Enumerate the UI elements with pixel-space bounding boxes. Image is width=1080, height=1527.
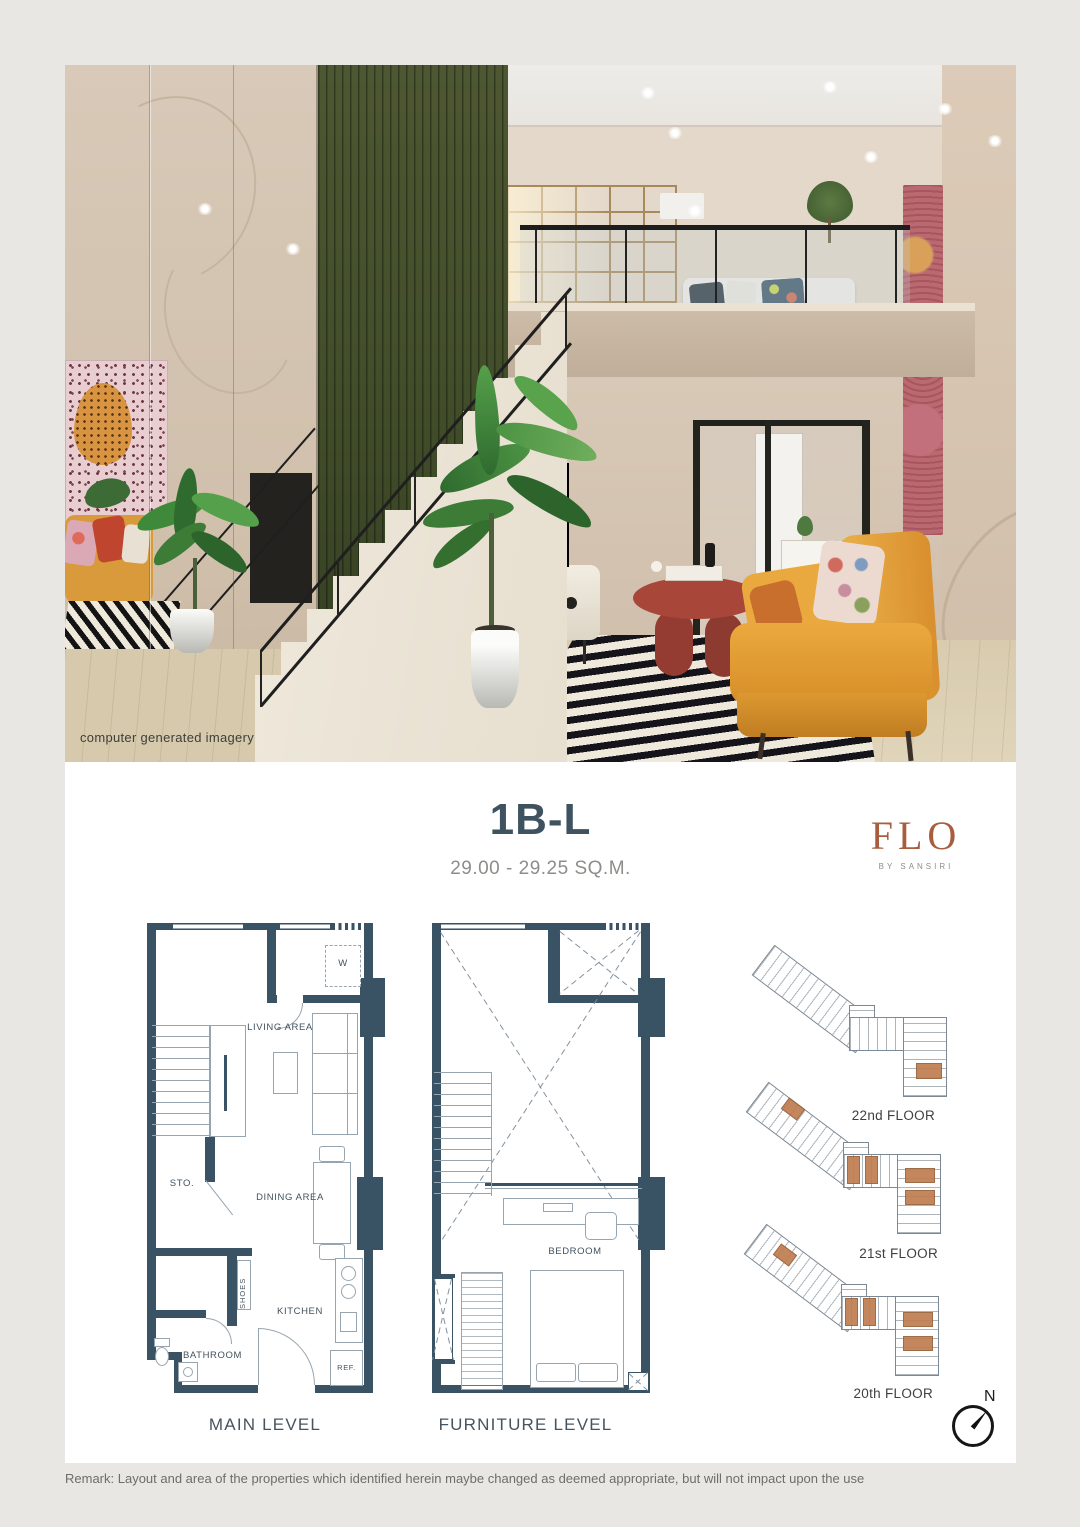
laptop	[543, 1203, 573, 1212]
brand-logo: FLO BY SANSIRI	[870, 814, 962, 871]
decor-shape	[224, 1055, 227, 1111]
decor-shape	[258, 1328, 259, 1385]
label-kitchen: KITCHEN	[265, 1306, 335, 1318]
decor-shape	[197, 203, 213, 215]
spotlight	[937, 103, 953, 115]
spotlight	[863, 151, 879, 163]
floorplate-21	[747, 1100, 957, 1245]
stove-burner	[341, 1266, 356, 1281]
decor-shape	[693, 420, 870, 426]
toilet-bowl	[155, 1347, 169, 1366]
decor-shape	[148, 1310, 206, 1318]
decor-shape	[147, 923, 156, 1360]
decor-shape	[508, 125, 1016, 127]
coffee-table	[273, 1052, 298, 1094]
decor-shape	[805, 230, 807, 303]
shaft-block	[357, 1177, 383, 1250]
photo-caption: computer generated imagery	[80, 730, 254, 745]
decor-shape	[535, 230, 537, 303]
decor-shape	[548, 923, 560, 1002]
label-washer: W	[325, 958, 361, 970]
bed-pillow	[536, 1363, 576, 1382]
label-shoes: SHOES	[238, 1267, 248, 1309]
stove-burner	[341, 1284, 356, 1299]
sofa-pillow-floral	[812, 539, 887, 627]
brand-name: FLO	[870, 814, 962, 858]
decor-shape	[489, 513, 494, 633]
decor-shape	[312, 1053, 358, 1054]
main-level-caption: MAIN LEVEL	[140, 1415, 390, 1435]
furniture-level-plan: BEDROOM	[425, 922, 680, 1400]
highlighted-unit	[865, 1156, 878, 1184]
floorplate-20	[745, 1242, 955, 1387]
label-fridge: REF.	[330, 1363, 363, 1373]
coffee-table-leg	[655, 610, 693, 676]
highlighted-unit	[903, 1312, 933, 1327]
label-dining: DINING AREA	[252, 1192, 328, 1204]
label-living: LIVING AREA	[245, 1022, 315, 1034]
decor-shape	[267, 923, 276, 996]
decor-shape	[565, 293, 567, 350]
decor-shape	[183, 1367, 193, 1377]
sofa	[312, 1013, 358, 1135]
wardrobe	[461, 1272, 503, 1390]
mirror-wall	[65, 65, 318, 762]
table-books	[665, 565, 723, 581]
table-cup	[651, 561, 662, 572]
decor-shape	[347, 1013, 348, 1135]
highlighted-unit	[903, 1336, 933, 1351]
decor-shape	[625, 230, 627, 303]
bed-pillow	[578, 1363, 618, 1382]
decor-shape	[258, 1328, 315, 1385]
label-bedroom: BEDROOM	[537, 1246, 613, 1258]
spotlight	[987, 135, 1003, 147]
main-level-plan: W LIVING AREA STO. DINING AREA SHOES KIT…	[140, 922, 390, 1400]
highlighted-unit	[847, 1156, 860, 1184]
highlighted-unit	[905, 1190, 935, 1205]
shaft-block	[360, 978, 385, 1037]
decor-shape	[895, 230, 897, 303]
shaft-block	[638, 978, 665, 1037]
decor-shape	[205, 1137, 215, 1182]
decor-shape	[641, 1037, 650, 1177]
toilet-tank	[154, 1338, 170, 1347]
spotlight	[667, 127, 683, 139]
decor-shape	[173, 924, 243, 929]
furniture-level-caption: FURNITURE LEVEL	[398, 1415, 653, 1435]
decor-shape	[414, 470, 416, 527]
dining-chair	[319, 1146, 345, 1162]
spotlight	[640, 87, 656, 99]
highlighted-unit	[845, 1298, 858, 1326]
decor-shape	[312, 1093, 358, 1094]
decor-shape	[641, 923, 650, 978]
decor-shape	[187, 524, 253, 578]
mezzanine-slab	[508, 303, 975, 311]
left-plant-pot	[170, 609, 214, 653]
decor-shape	[715, 230, 717, 303]
label-storage: STO.	[162, 1178, 202, 1190]
stairs	[152, 1025, 210, 1137]
leopard-figure	[74, 383, 132, 465]
table-vase	[705, 543, 715, 567]
decor-shape	[440, 924, 525, 929]
stairs	[434, 1072, 492, 1196]
brochure-page: computer generated imagery 1B-L 29.00 - …	[0, 0, 1080, 1527]
decor-shape	[337, 560, 339, 617]
shaft-block	[638, 1177, 665, 1250]
decor-shape	[432, 1360, 455, 1364]
brand-byline: BY SANSIRI	[870, 862, 962, 871]
building-wing-right	[903, 1017, 947, 1097]
floorplate-22	[753, 963, 963, 1108]
decor-shape	[174, 1385, 258, 1393]
highlighted-unit	[905, 1168, 935, 1183]
decor-shape	[364, 923, 373, 978]
decor-shape	[81, 474, 133, 513]
decor-shape	[227, 1256, 237, 1326]
center-plant	[417, 353, 597, 710]
decor-shape	[260, 650, 262, 707]
label-bathroom: BATHROOM	[175, 1350, 250, 1362]
footer-remark: Remark: Layout and area of the propertie…	[65, 1471, 1025, 1486]
compass: N	[948, 1388, 1006, 1450]
decor-shape	[280, 924, 330, 929]
spotlight	[687, 205, 703, 217]
floor-label-20: 20th FLOOR	[783, 1386, 933, 1401]
highlighted-unit	[916, 1063, 942, 1079]
decor-shape	[193, 558, 197, 613]
kitchen-sink	[340, 1312, 357, 1332]
decor-shape	[267, 995, 277, 1003]
sofa-base	[737, 693, 927, 737]
spotlight	[822, 81, 838, 93]
decor-shape	[485, 1183, 642, 1186]
left-plant	[135, 463, 265, 653]
north-label: N	[984, 1388, 996, 1406]
decor-shape	[364, 1250, 373, 1393]
decor-shape	[485, 1188, 642, 1189]
decor-shape	[603, 923, 643, 930]
highlighted-unit	[863, 1298, 876, 1326]
decor-shape	[148, 1248, 252, 1256]
small-plant	[797, 516, 813, 536]
tv-panel	[210, 1025, 246, 1137]
hero-photo: computer generated imagery	[65, 65, 1016, 762]
center-plant-pot	[471, 630, 519, 708]
decor-shape	[205, 1180, 233, 1215]
decor-shape	[285, 243, 301, 255]
decor-shape	[303, 995, 373, 1003]
decor-shape	[364, 1037, 373, 1177]
desk-chair	[585, 1212, 617, 1240]
decor-shape	[502, 466, 597, 535]
